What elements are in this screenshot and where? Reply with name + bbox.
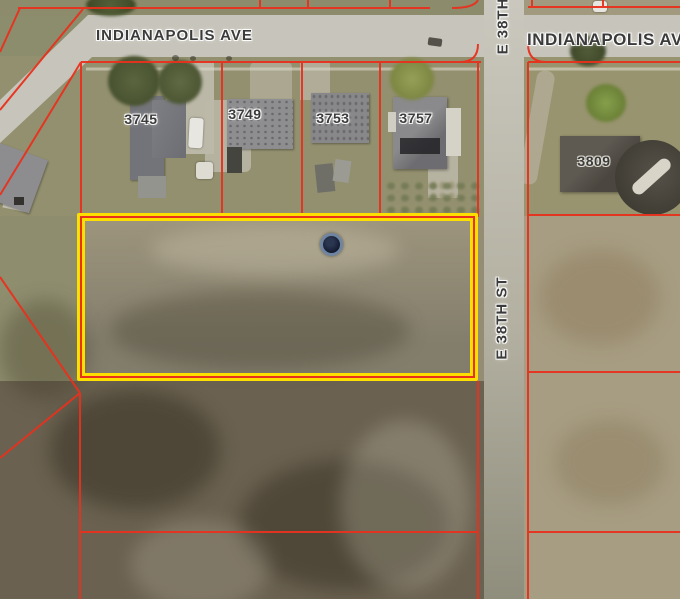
tree [158, 60, 202, 104]
car [188, 118, 204, 149]
highlighted-parcel-core-line [80, 216, 475, 378]
east-field-patch [555, 420, 665, 505]
road-mark [226, 56, 232, 61]
car [593, 1, 607, 12]
east-field-patch [540, 250, 660, 345]
house-3757-garage [446, 108, 461, 156]
tree [108, 56, 160, 106]
tree [390, 58, 434, 100]
street-label-indianapolis-ave-east: INDIANAPOLIS AVE [527, 30, 680, 50]
circular-structure [615, 140, 680, 215]
aerial-map-viewport[interactable]: INDIANAPOLIS AVE INDIANAPOLIS AVE E 38TH… [0, 0, 680, 599]
house-3745-wing [152, 100, 186, 158]
circular-structure-bar [630, 156, 674, 197]
road-mark [190, 56, 196, 61]
street-label-indianapolis-ave-west: INDIANAPOLIS AVE [96, 27, 253, 44]
house-number-3749: 3749 [228, 106, 261, 122]
tree [586, 84, 626, 122]
street-label-e-38th-st-north: E 38TH [495, 0, 512, 54]
house-number-3757: 3757 [399, 110, 432, 126]
highlighted-parcel-outline[interactable] [77, 213, 478, 381]
house-3757-trim [388, 112, 396, 132]
car [196, 162, 213, 179]
house-number-3753: 3753 [316, 110, 349, 126]
house-3757-shadow [400, 138, 440, 154]
house-number-3745: 3745 [124, 111, 157, 127]
street-label-e-38th-st: E 38TH ST [494, 276, 511, 359]
car [428, 37, 443, 47]
shed-3749 [227, 147, 242, 173]
woods-light-branches [340, 420, 470, 590]
road-mark [172, 55, 179, 61]
highlighted-parcel-inner-band [82, 218, 473, 376]
woods-dark-patch [50, 390, 220, 510]
west-yard-object [14, 197, 24, 205]
shed-3753-b [333, 159, 352, 183]
house-number-3809: 3809 [577, 153, 610, 169]
house-3757-roof [393, 97, 447, 169]
house-3745-porch [138, 176, 166, 198]
